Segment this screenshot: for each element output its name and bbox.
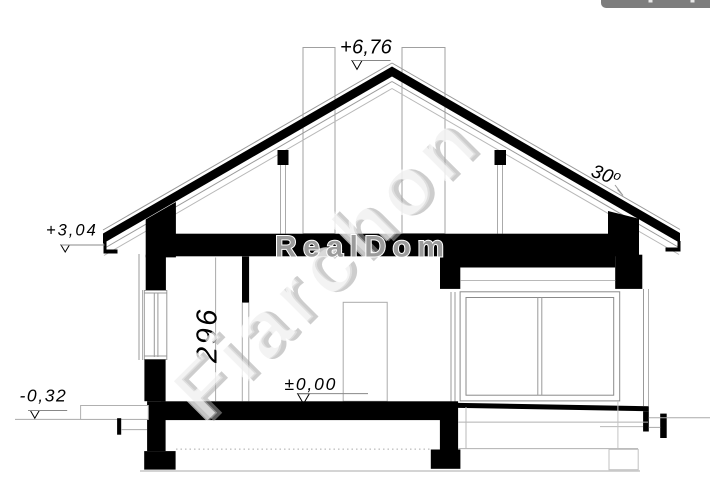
- svg-text:±0,00: ±0,00: [285, 374, 338, 394]
- svg-text:-0,32: -0,32: [20, 386, 68, 406]
- svg-text:+6,76: +6,76: [340, 37, 393, 59]
- svg-text:RealDom: RealDom: [275, 231, 451, 264]
- svg-text:+3,04: +3,04: [46, 222, 98, 240]
